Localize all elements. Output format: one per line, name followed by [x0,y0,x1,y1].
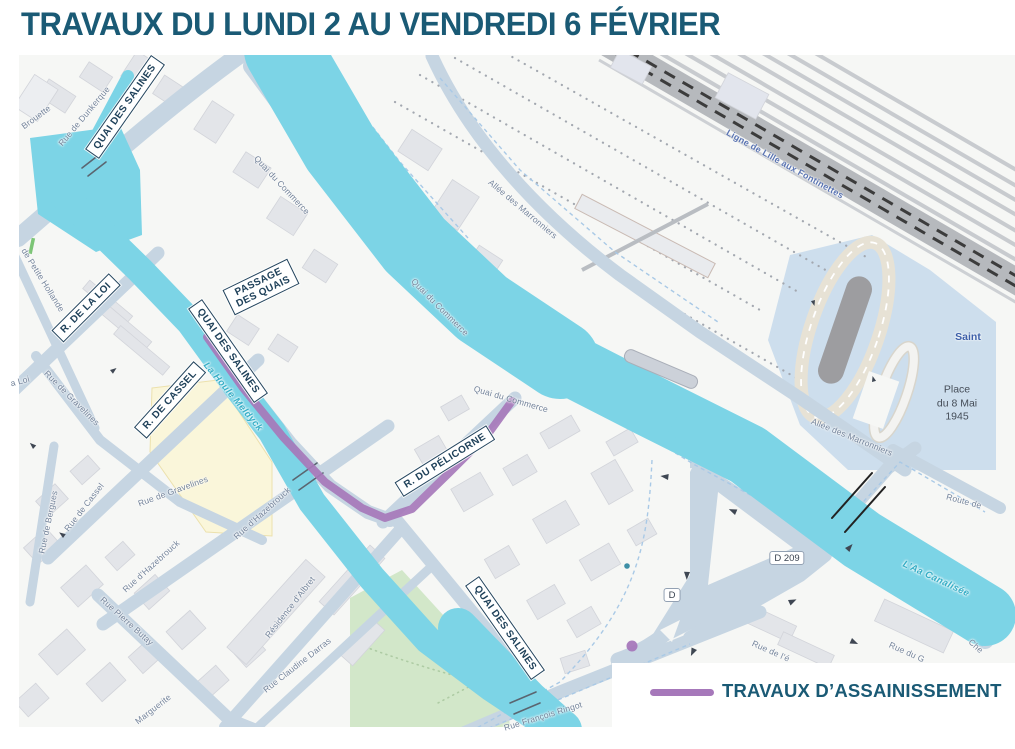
legend: TRAVAUX D’ASSAINISSEMENT [612,663,1015,749]
works-legend-label: TRAVAUX D’ASSAINISSEMENT [722,680,1002,702]
works-dot [627,641,638,652]
poi-dot [624,563,630,569]
works-map: QUAI DES SALINESR. DE LA LOIR. DE CASSEL… [0,0,1015,749]
works-legend-swatch [650,689,714,696]
map-canvas [0,0,1015,749]
page: TRAVAUX DU LUNDI 2 AU VENDREDI 6 FÉVRIER [0,0,1015,749]
